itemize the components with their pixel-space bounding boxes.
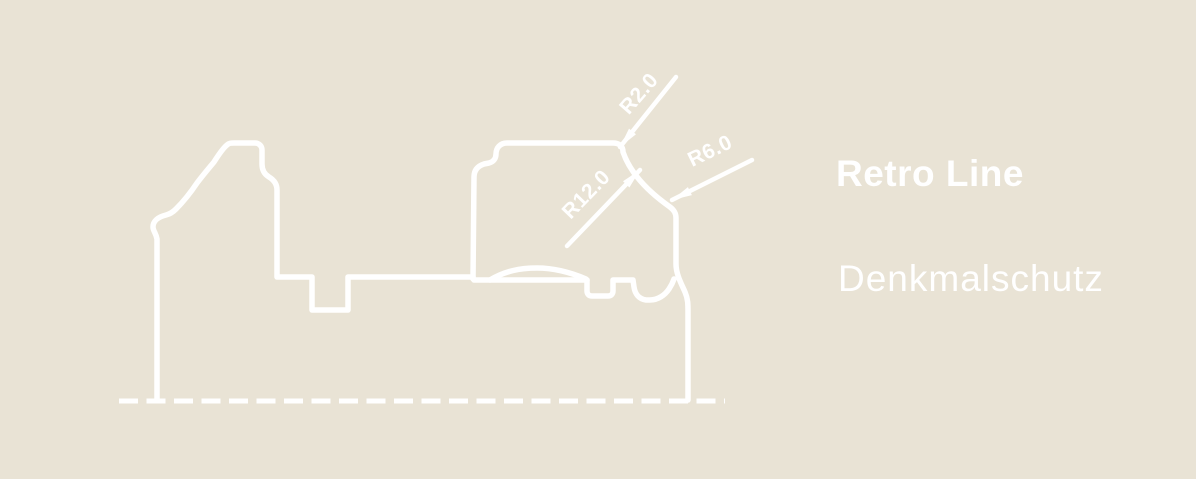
dimension-r2: R2.0 — [615, 69, 676, 147]
product-banner: R2.0 R12.0 R6.0 Retro Line Denkmalschutz — [0, 0, 1196, 479]
dimension-r12-label: R12.0 — [558, 165, 615, 223]
product-variant: Denkmalschutz — [838, 258, 1104, 300]
profile-drawing: R2.0 R12.0 R6.0 — [0, 0, 1196, 479]
dimension-r2-label: R2.0 — [615, 69, 663, 119]
dimension-r6: R6.0 — [672, 131, 752, 200]
dimension-r12: R12.0 — [558, 165, 640, 246]
profile-groove-detail — [587, 279, 674, 300]
profile-left-outline — [153, 143, 473, 400]
product-name: Retro Line — [836, 153, 1024, 195]
dimension-r6-label: R6.0 — [684, 131, 736, 172]
